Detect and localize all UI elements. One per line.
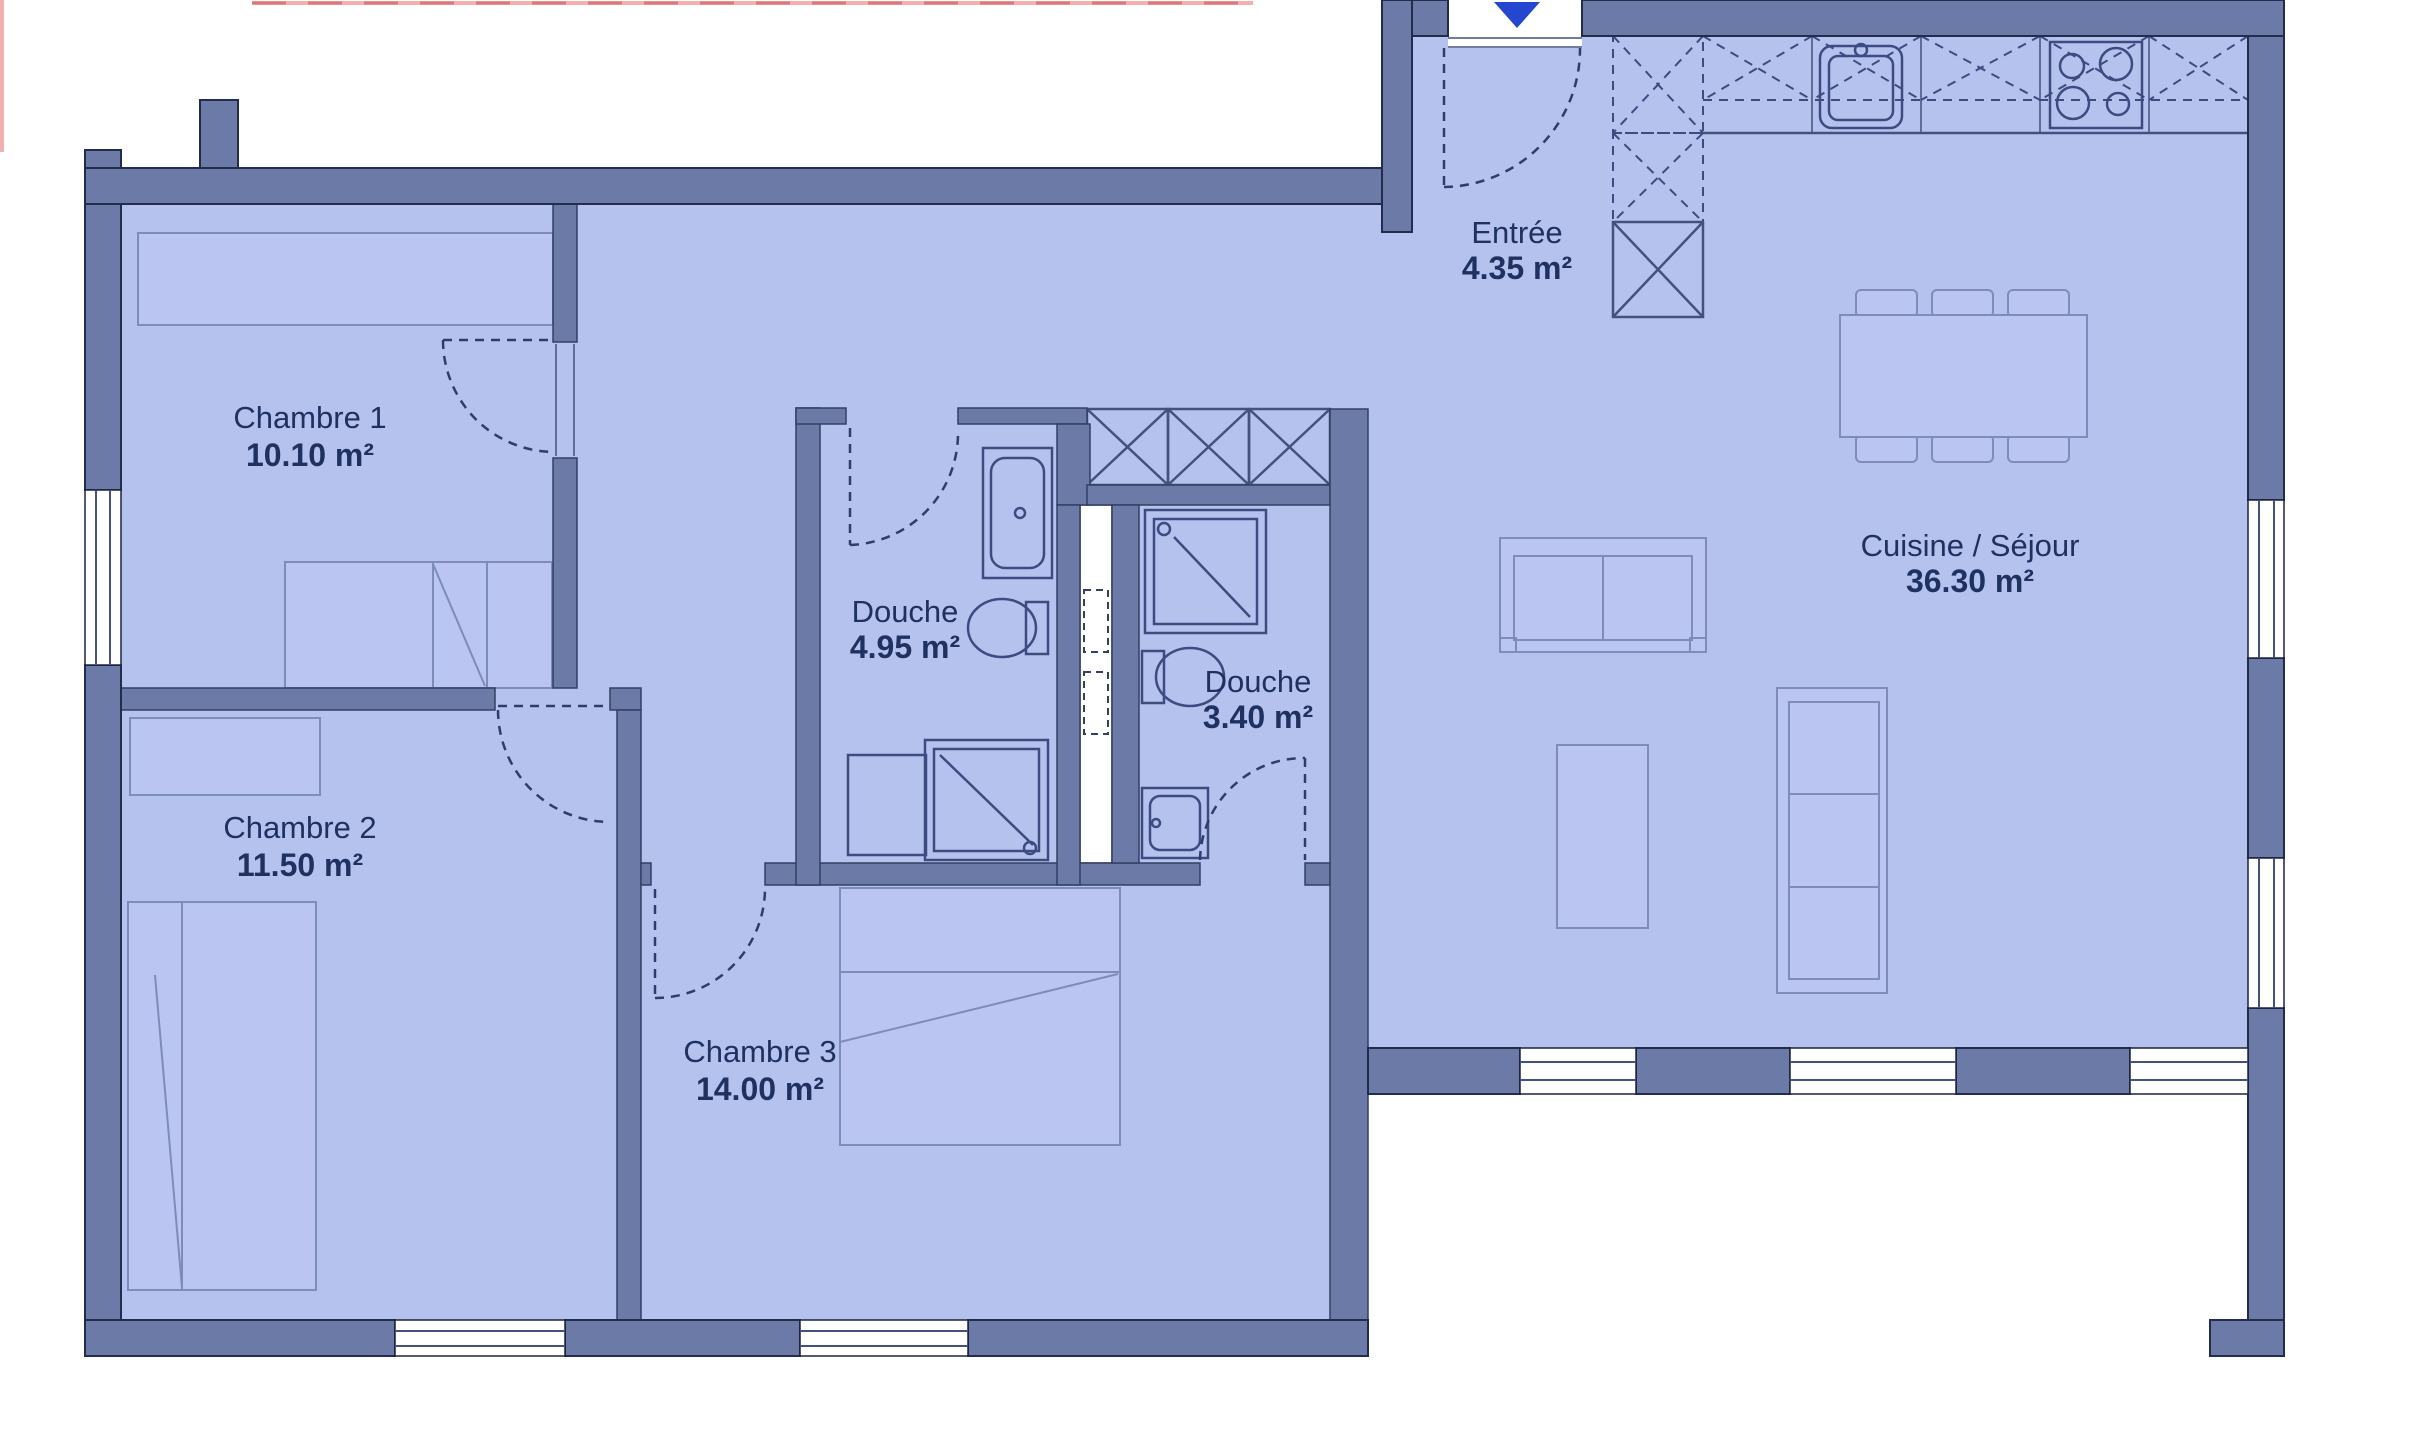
room-area-chambre1: 10.10 m² — [246, 437, 374, 473]
floor-plan-drawing: Chambre 1 10.10 m² Chambre 2 11.50 m² Ch… — [0, 0, 2416, 1444]
floor-plan: Chambre 1 10.10 m² Chambre 2 11.50 m² Ch… — [0, 0, 2416, 1444]
window — [2248, 500, 2284, 658]
window — [1520, 1048, 1636, 1094]
room-area-chambre2: 11.50 m² — [237, 847, 363, 883]
room-area-cuisine: 36.30 m² — [1906, 563, 2034, 599]
room-label-cuisine: Cuisine / Séjour — [1861, 528, 2080, 563]
window — [395, 1320, 565, 1356]
desk — [130, 718, 320, 795]
window — [1790, 1048, 1956, 1094]
room-label-douche1: Douche — [852, 594, 959, 629]
duct-shaft — [1080, 505, 1112, 863]
single-bed — [285, 562, 552, 688]
window — [85, 490, 121, 665]
room-label-chambre1: Chambre 1 — [233, 400, 386, 435]
dining-table — [1840, 290, 2087, 462]
shelf-unit — [1777, 688, 1887, 993]
closet — [138, 233, 553, 325]
window — [800, 1320, 968, 1356]
sofa — [1500, 538, 1706, 652]
room-label-chambre2: Chambre 2 — [223, 810, 376, 845]
double-bed — [840, 888, 1120, 1145]
room-label-entree: Entrée — [1471, 215, 1562, 250]
room-area-douche2: 3.40 m² — [1203, 699, 1313, 735]
room-area-douche1: 4.95 m² — [850, 629, 960, 665]
window — [2248, 858, 2284, 1008]
room-label-chambre3: Chambre 3 — [683, 1034, 836, 1069]
coffee-table — [1557, 745, 1648, 928]
room-area-chambre3: 14.00 m² — [696, 1071, 824, 1107]
room-label-douche2: Douche — [1205, 664, 1312, 699]
red-reference-lines — [2, 0, 1253, 152]
room-area-entree: 4.35 m² — [1462, 250, 1572, 286]
window — [2130, 1048, 2248, 1094]
entrance-arrow-icon — [1494, 2, 1540, 28]
single-bed — [128, 902, 316, 1290]
